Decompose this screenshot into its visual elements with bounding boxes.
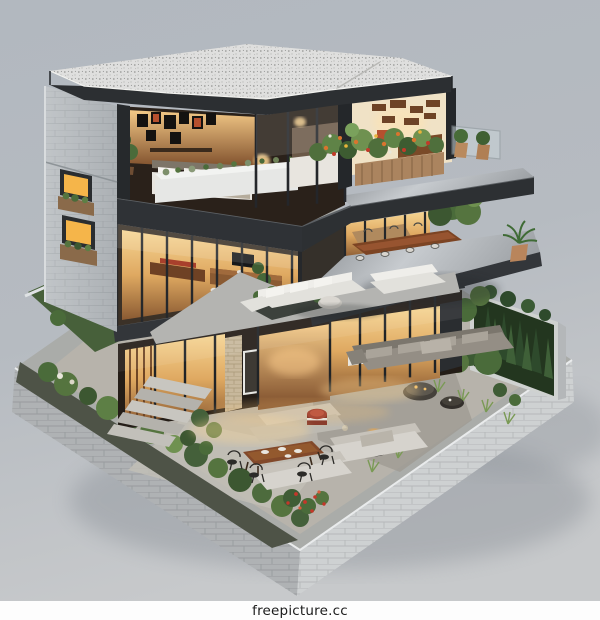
watermark-text: freepicture.cc bbox=[252, 603, 348, 619]
striped-side-table bbox=[307, 409, 327, 425]
wall-window-upper bbox=[58, 169, 94, 216]
left-concrete-wall bbox=[45, 86, 117, 332]
wall-window-lower bbox=[60, 215, 97, 266]
isometric-house-illustration bbox=[0, 0, 600, 601]
watermark-bar: freepicture.cc bbox=[0, 601, 600, 620]
screenshot-root: freepicture.cc bbox=[0, 0, 600, 620]
